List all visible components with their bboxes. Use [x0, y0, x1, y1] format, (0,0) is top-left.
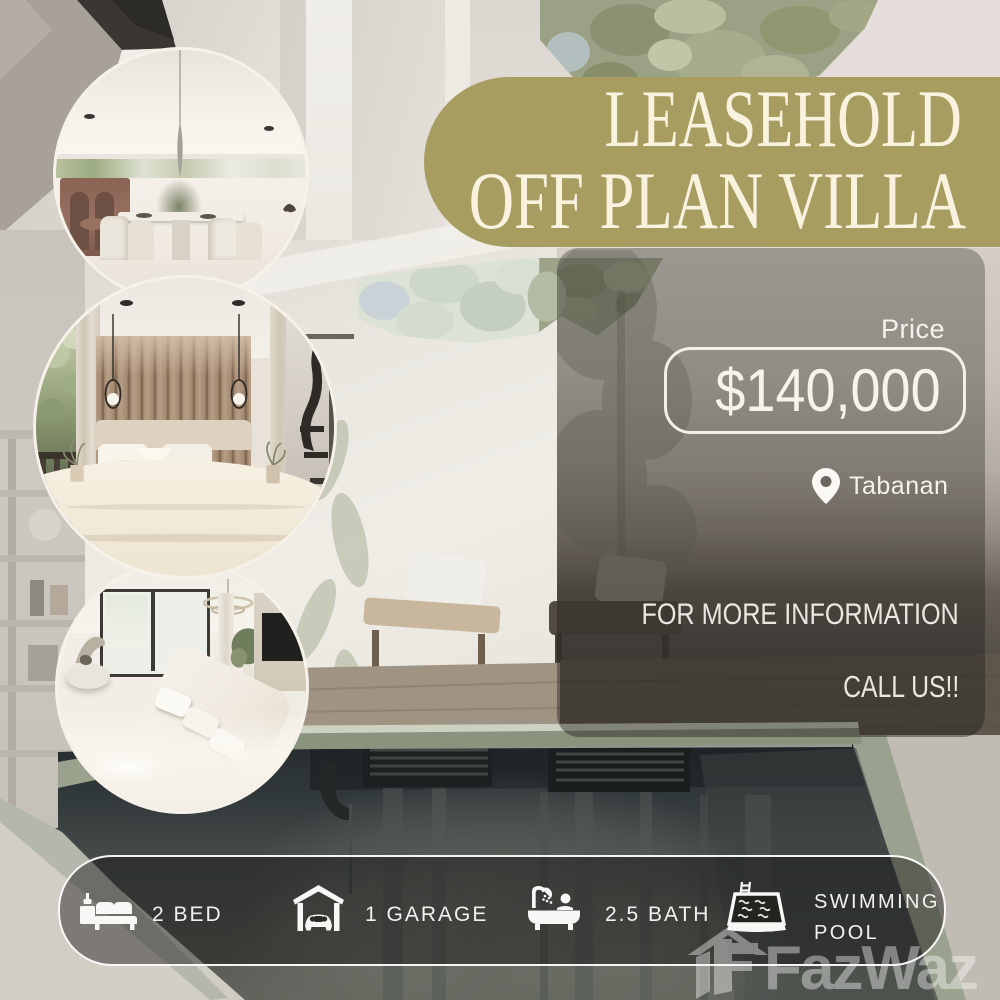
svg-text:FazWaz: FazWaz: [764, 934, 977, 1000]
